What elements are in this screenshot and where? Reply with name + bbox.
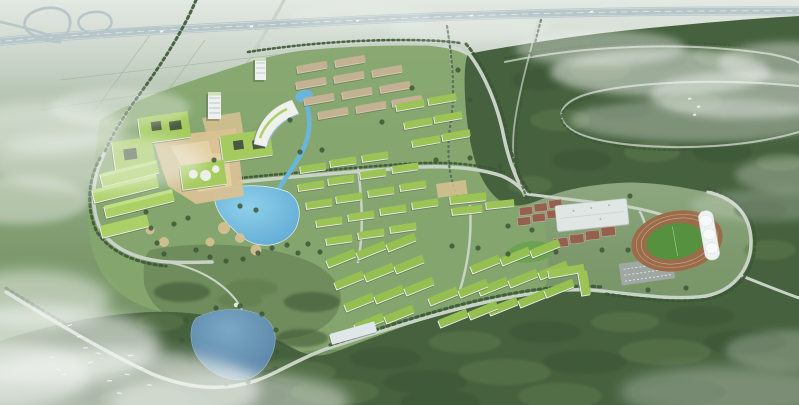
tree [475,245,480,250]
tree [379,119,384,124]
tree [207,254,212,259]
forest-clump [543,350,627,374]
tree [255,250,260,255]
vehicle [590,11,593,13]
forest-clump [154,282,210,302]
tree [154,240,159,245]
rendering-canvas: Aerial bird's-eye architectural renderin… [0,0,799,405]
tree [274,349,279,354]
tree [148,225,153,230]
tree [211,157,216,162]
tree [183,317,188,322]
tree [317,249,322,254]
forest-clump [666,306,734,326]
forest-clump [552,149,612,171]
tree [467,155,472,160]
tree [269,245,274,250]
tree [171,221,176,226]
vehicle [160,31,163,33]
tree [295,250,300,255]
tree [287,117,292,122]
tree [284,242,289,247]
tree [193,247,198,252]
tree [273,327,278,332]
tree [449,243,454,248]
tree [179,337,184,342]
tree [529,227,534,232]
vehicle [250,26,253,28]
forest-clump [349,347,421,369]
tree [553,249,558,254]
forest-clump [591,312,659,332]
forest-clump [509,321,581,343]
tree [683,285,688,290]
tree [625,247,630,252]
tree [467,97,472,102]
forest-clump [383,370,467,394]
tree [505,251,510,256]
tree [305,241,310,246]
tree [213,305,218,310]
forest-clump [459,359,551,385]
tree [505,223,510,228]
tree [297,149,302,154]
tree [185,215,190,220]
forest-clump [284,292,340,312]
tree [237,303,242,308]
tree [409,85,414,90]
tree [240,256,245,261]
tree [253,207,258,212]
tree [223,258,228,263]
tower [253,58,266,82]
aerial-scene: Aerial bird's-eye architectural renderin… [0,0,799,405]
tree [599,247,604,252]
forest-clump [429,331,501,353]
tree [143,209,148,214]
mist-cloud [50,88,190,128]
tower [206,92,221,121]
forest-clump [619,339,711,365]
mist-cloud [290,4,430,28]
tree [645,287,650,292]
mist-cloud [515,30,685,66]
tree [161,251,166,256]
tree [627,193,632,198]
tree [237,203,242,208]
tree [433,157,438,162]
tree [319,147,324,152]
tree [259,311,264,316]
forest-clump [276,329,328,347]
tree [455,67,460,72]
tree [497,163,502,168]
